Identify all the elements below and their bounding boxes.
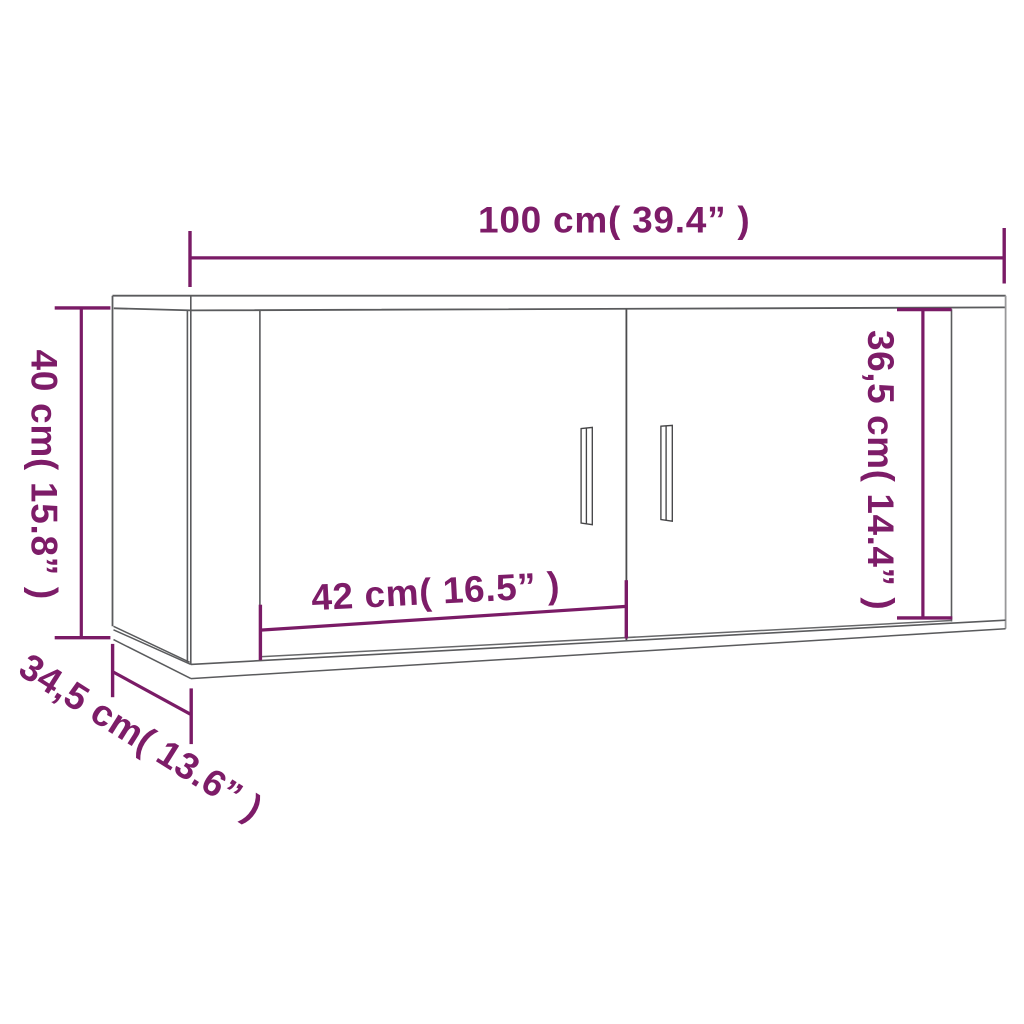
svg-text:36,5 cm( 14.4” ): 36,5 cm( 14.4” ) xyxy=(860,330,901,610)
svg-text:34,5 cm( 13.6” ): 34,5 cm( 13.6” ) xyxy=(12,646,270,829)
svg-text:40 cm( 15.8” ): 40 cm( 15.8” ) xyxy=(24,350,65,600)
svg-text:42 cm( 16.5” ): 42 cm( 16.5” ) xyxy=(310,564,561,618)
svg-text:100 cm( 39.4” ): 100 cm( 39.4” ) xyxy=(478,200,750,241)
